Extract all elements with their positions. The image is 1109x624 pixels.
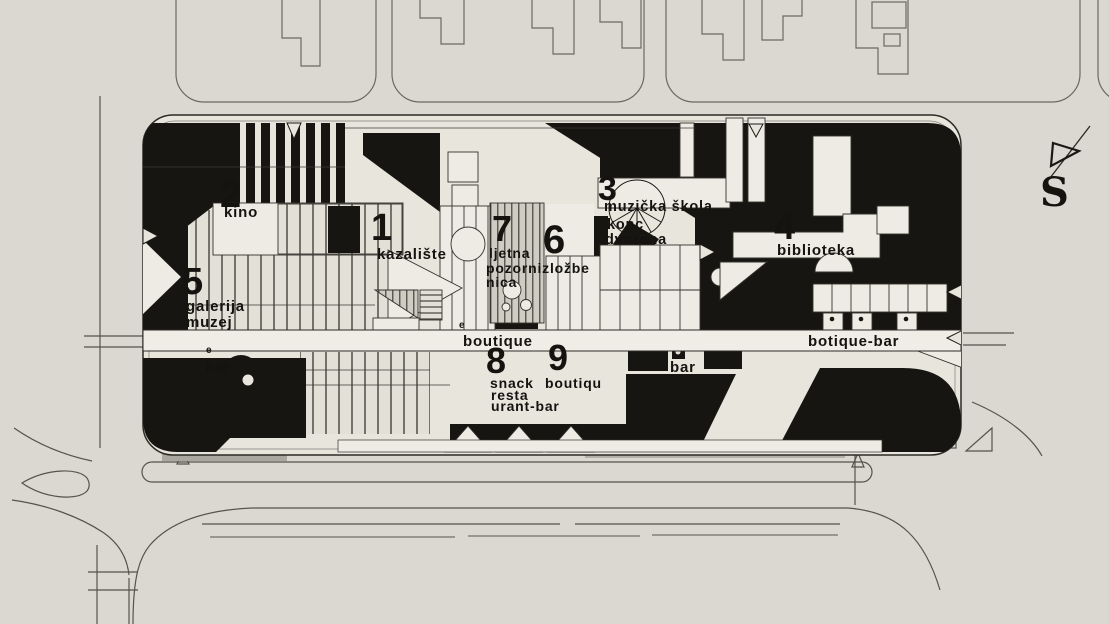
label-1-number: 1 — [371, 207, 392, 249]
label-biblioteka: biblioteka — [777, 242, 855, 259]
label-5-number: 5 — [182, 261, 203, 303]
site-plan-drawing: 2 kino 1 kazalište 5 galerija muzej e ba… — [0, 0, 1109, 624]
stall-dot — [830, 317, 835, 322]
label-urant-bar: urant-bar — [491, 398, 560, 414]
label-boutiqu: boutiqu — [545, 375, 602, 391]
label-muzej: muzej — [186, 314, 233, 331]
label-botique-bar: botique-bar — [808, 333, 899, 350]
label-nica: nica — [486, 274, 517, 290]
label-dvorana: dvorana — [605, 232, 667, 248]
stall-dot — [904, 317, 909, 322]
label-entrance-e: e — [206, 345, 212, 356]
label-bar-center: bar — [670, 359, 696, 376]
label-entrance-e-boutique: e — [459, 320, 465, 331]
bar-disc-dot — [243, 375, 254, 386]
label-kazaliste: kazalište — [377, 246, 447, 263]
label-9-number: 9 — [548, 337, 568, 378]
label-7-number: 7 — [492, 208, 512, 249]
scanned-site-plan-page: 2 kino 1 kazalište 5 galerija muzej e ba… — [0, 0, 1109, 624]
label-muzicka-skola: muzička škola — [604, 199, 713, 215]
label-konc: konc — [607, 217, 644, 233]
label-kino: kino — [224, 204, 258, 221]
label-6-number: 6 — [543, 218, 565, 262]
label-bar-left: bar — [205, 359, 231, 376]
stall-dot — [859, 317, 864, 322]
label-ljetna: ljetna — [489, 245, 530, 261]
label-galerija: galerija — [186, 298, 245, 315]
compass-letter: S — [1040, 169, 1069, 216]
